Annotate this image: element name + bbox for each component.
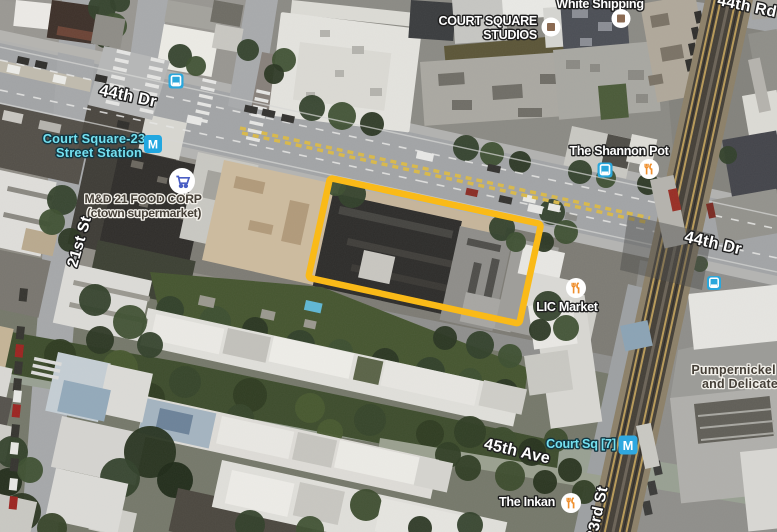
svg-text:Pumpernickel B: Pumpernickel B	[691, 363, 777, 377]
svg-text:The Inkan: The Inkan	[499, 495, 555, 509]
svg-text:Street Station: Street Station	[56, 145, 142, 160]
svg-text:M: M	[148, 138, 158, 152]
svg-text:COURT SQUARE: COURT SQUARE	[438, 14, 537, 28]
svg-text:M: M	[623, 438, 634, 453]
svg-text:and Delicate: and Delicate	[702, 377, 777, 391]
svg-text:M&D 21 FOOD CORP: M&D 21 FOOD CORP	[84, 192, 201, 206]
svg-text:(ctown supermarket): (ctown supermarket)	[87, 206, 201, 220]
svg-text:White Shipping: White Shipping	[556, 0, 643, 11]
svg-text:Court Square-23: Court Square-23	[43, 131, 146, 146]
svg-text:Court Sq [7]: Court Sq [7]	[546, 437, 616, 451]
svg-text:LIC Market: LIC Market	[536, 300, 598, 314]
svg-text:The Shannon Pot: The Shannon Pot	[569, 144, 669, 158]
svg-text:STUDIOS: STUDIOS	[483, 28, 537, 42]
